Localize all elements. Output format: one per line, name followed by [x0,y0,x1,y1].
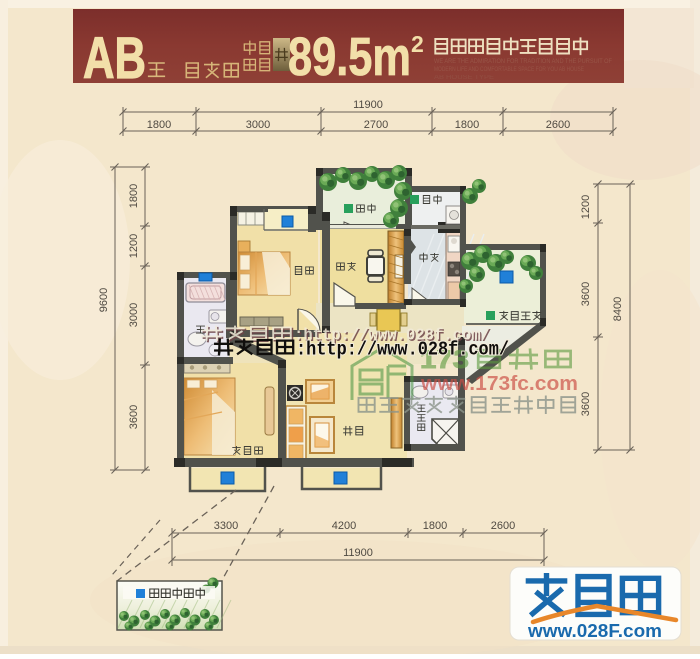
svg-text:3600: 3600 [128,405,140,429]
svg-text::http://www.028f.com/: :http://www.028f.com/ [296,339,509,361]
svg-text:2600: 2600 [491,520,515,532]
svg-text:2600: 2600 [546,119,570,131]
svg-text:9600: 9600 [98,288,110,312]
svg-text:2: 2 [411,31,424,57]
svg-text:4200: 4200 [332,520,356,532]
svg-text:www.028F.com: www.028F.com [527,621,662,641]
svg-text:1200: 1200 [580,195,592,219]
svg-text:89.5m: 89.5m [288,27,411,87]
svg-text:1800: 1800 [423,520,447,532]
svg-text:1800: 1800 [128,184,140,208]
svg-text:3300: 3300 [214,520,238,532]
svg-text:WE ARE THE ADMIRATION FOR TRAD: WE ARE THE ADMIRATION FOR TRADITION AND … [434,58,612,65]
svg-text:2700: 2700 [364,119,388,131]
svg-text:8400: 8400 [612,297,624,321]
svg-text:AB HOUSE TYPE: AB HOUSE TYPE [434,75,494,81]
svg-text:11900: 11900 [353,99,383,111]
svg-text:AB: AB [83,26,146,91]
svg-text:MODERN LIFE AND COMFORTABLE SP: MODERN LIFE AND COMFORTABLE SPACE FOR YO… [434,66,584,73]
svg-text:1800: 1800 [147,119,171,131]
svg-text:3600: 3600 [580,282,592,306]
svg-text:3000: 3000 [128,303,140,327]
svg-text:1800: 1800 [455,119,479,131]
svg-text:3600: 3600 [580,392,592,416]
svg-text:www.173fc.com: www.173fc.com [420,373,578,395]
svg-text:3000: 3000 [246,119,270,131]
svg-text:11900: 11900 [343,547,373,559]
svg-text:1200: 1200 [128,234,140,258]
